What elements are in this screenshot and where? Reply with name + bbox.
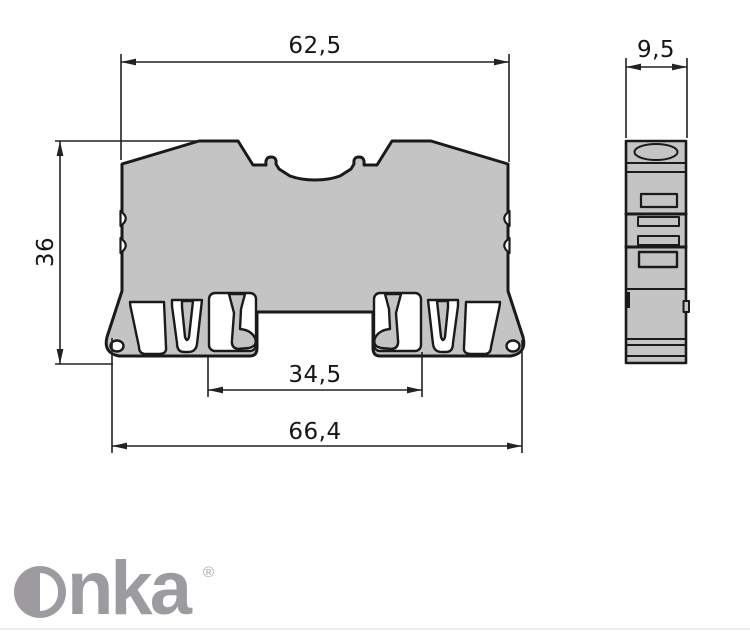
brand-logo: nka ® [0, 0, 260, 631]
page: 62,5 36 34,5 66,4 9,5 nka ® [0, 0, 750, 631]
side-top-hole [635, 144, 678, 160]
dim-label-inner-width: 34,5 [255, 362, 375, 388]
logo-o-cutout [40, 573, 58, 611]
page-bottom-border [0, 628, 750, 630]
dim-side-width [626, 58, 687, 138]
logo-o-glyph [14, 566, 66, 618]
registered-trademark-mark: ® [203, 565, 214, 580]
dim-label-side-width: 9,5 [616, 37, 696, 63]
logo-text: nka [67, 551, 189, 627]
dim-label-top-width: 62,5 [255, 33, 375, 59]
dim-label-bottom-width: 66,4 [255, 419, 375, 445]
side-view [626, 141, 689, 363]
